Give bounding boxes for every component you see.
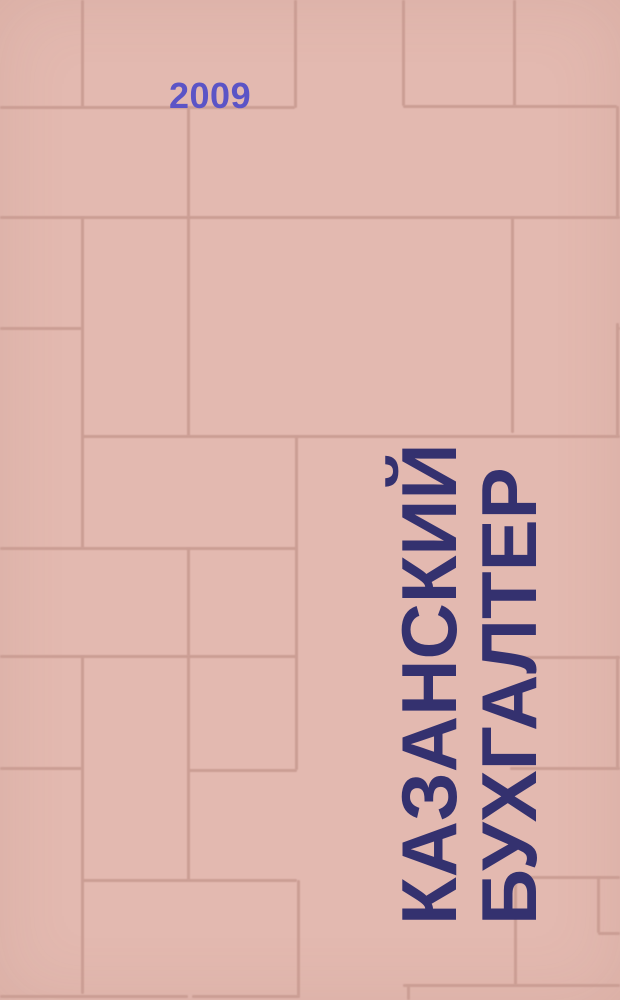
tile-grout-line-h [0,327,82,330]
title-line-1: КАЗАНСКИЙ [389,425,469,925]
tile-grout-line-v [616,323,619,436]
magazine-cover: 2009 КАЗАНСКИЙ БУХГАЛТЕР [0,0,620,1000]
tile-grout-line-h [0,216,620,219]
tile-grout-line-v [187,548,190,656]
tile-grout-line-v [407,985,410,1000]
tile-grout-line-h [598,932,620,935]
tile-grout-line-v [294,0,297,108]
tile-grout-line-v [81,217,84,548]
tile-grout-line-h [0,547,297,550]
title-line-2: БУХГАЛТЕР [469,425,549,925]
year-label: 2009 [169,78,251,114]
tile-grout-line-v [187,656,190,880]
tile-grout-line-h [192,995,300,998]
tile-grout-line-v [597,877,600,933]
tile-grout-line-v [81,656,84,994]
tile-grout-line-v [187,217,190,436]
tile-grout-line-h [0,767,82,770]
magazine-title: КАЗАНСКИЙ БУХГАЛТЕР [389,425,549,925]
tile-grout-line-h [188,769,297,772]
tile-grout-line-v [616,656,619,768]
tile-grout-line-v [187,107,190,217]
tile-grout-line-v [295,436,298,770]
tile-grout-line-h [403,984,620,987]
tile-grout-line-v [81,0,84,107]
tile-grout-line-v [402,0,405,106]
tile-grout-line-v [297,880,300,996]
tile-grout-line-h [0,655,297,658]
tile-grout-line-h [0,995,188,998]
tile-grout-line-v [513,0,516,106]
tile-grout-line-v [511,217,514,433]
tile-grout-line-h [403,105,617,108]
tile-grout-line-v [616,106,619,217]
